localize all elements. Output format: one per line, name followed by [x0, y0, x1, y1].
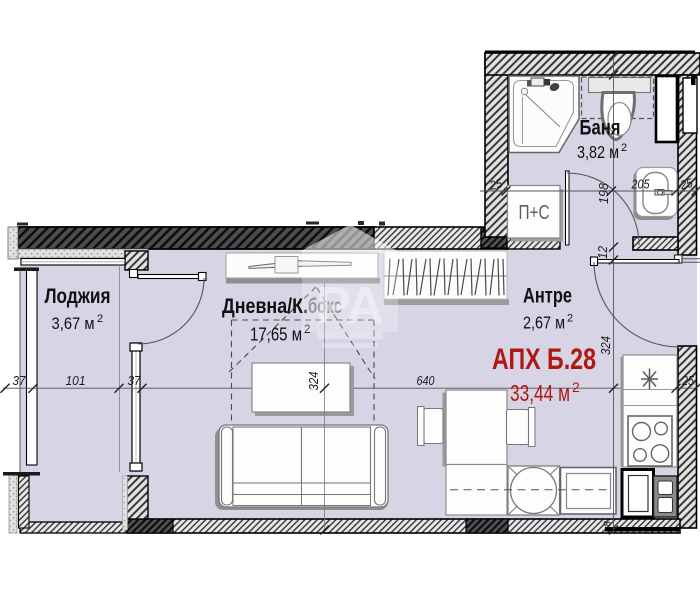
svg-text:2: 2: [621, 142, 627, 154]
svg-text:2: 2: [97, 313, 103, 325]
svg-text:3,82 м: 3,82 м: [577, 142, 619, 162]
svg-text:324: 324: [599, 336, 613, 355]
svg-text:198: 198: [597, 183, 611, 204]
svg-text:101: 101: [66, 374, 86, 388]
svg-text:8: 8: [602, 521, 614, 527]
svg-text:33,44 м: 33,44 м: [510, 380, 570, 406]
svg-text:205: 205: [631, 178, 650, 192]
svg-text:17,65 м: 17,65 м: [250, 325, 302, 345]
svg-text:П+С: П+С: [519, 202, 550, 224]
svg-text:37: 37: [128, 374, 142, 388]
svg-text:Баня: Баня: [580, 117, 621, 140]
svg-text:2,67 м: 2,67 м: [523, 313, 565, 333]
svg-text:РА: РА: [316, 277, 384, 335]
svg-text:Дневна/К.: Дневна/К.: [222, 295, 308, 318]
svg-text:37: 37: [13, 374, 27, 388]
svg-text:Лоджия: Лоджия: [45, 285, 111, 308]
svg-text:324: 324: [307, 371, 321, 390]
svg-text:640: 640: [417, 374, 435, 388]
svg-text:25: 25: [681, 374, 694, 388]
svg-text:2: 2: [572, 379, 580, 395]
svg-text:2: 2: [567, 313, 573, 325]
svg-text:Антре: Антре: [523, 285, 572, 308]
svg-text:АПХ Б.28: АПХ Б.28: [492, 343, 596, 376]
svg-text:12: 12: [596, 246, 610, 259]
svg-text:3,67 м: 3,67 м: [52, 314, 95, 333]
